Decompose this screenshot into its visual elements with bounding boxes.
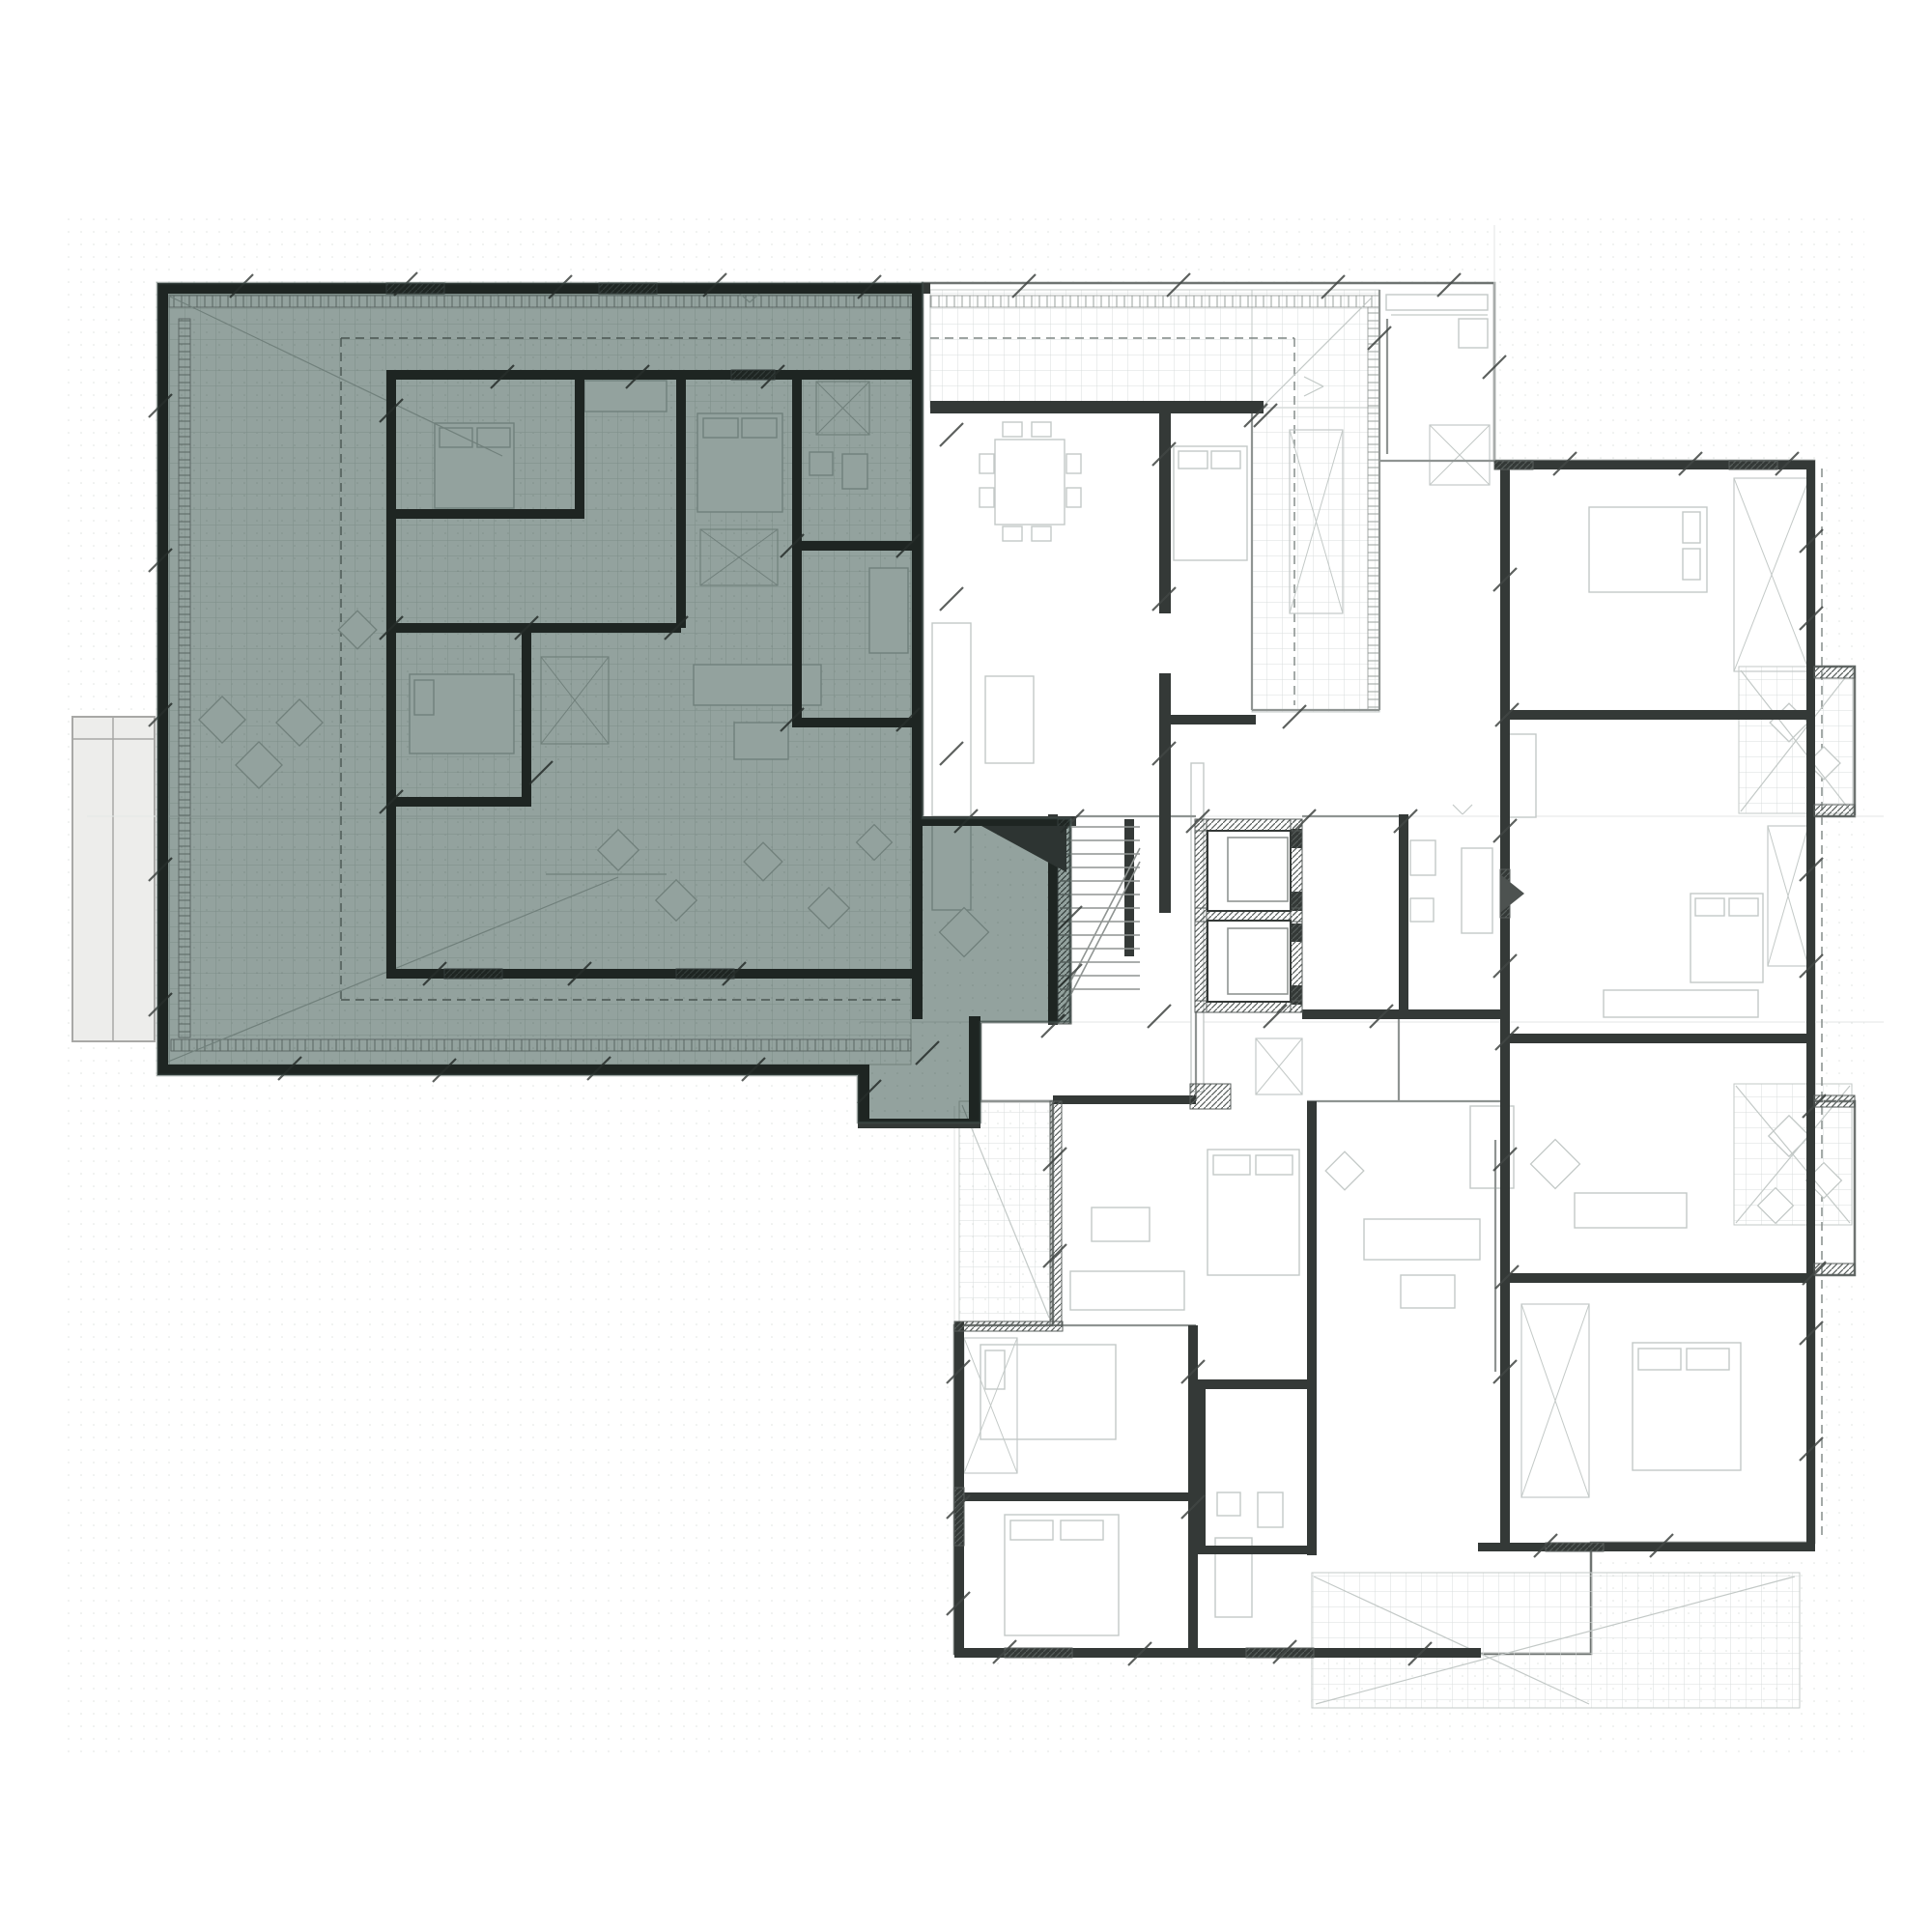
floor-plan-canvas [0, 0, 1932, 1932]
site-block [72, 717, 155, 1041]
floor-plan-stage [0, 0, 1932, 1932]
